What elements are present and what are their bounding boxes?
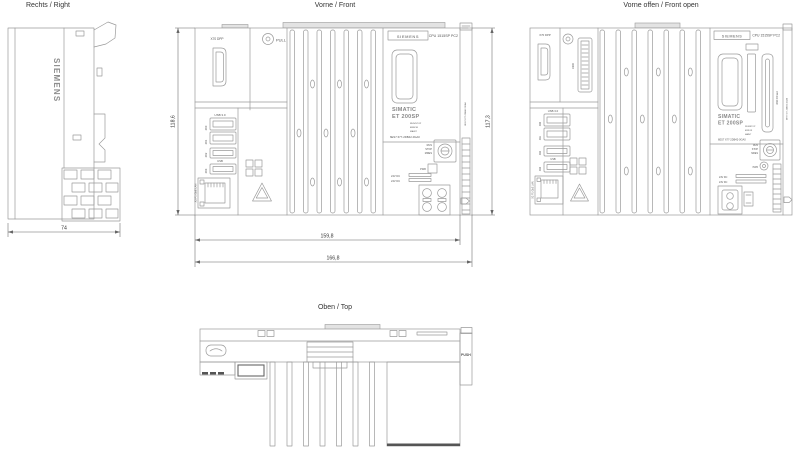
siemens-vertical-label: SIEMENS [52,58,61,102]
front-view: Vorne / Front X70 DPP PULL USB 3.0 [160,0,510,290]
usb-x62-label: X62 [204,152,208,157]
family-label-2: ET 200SP [392,114,420,120]
height-dimension-right: 117,3 [472,28,495,215]
right-view-title: Rechts / Right [26,2,70,9]
module-front-open-outline [530,23,792,215]
brand-logo: SIEMENS [397,34,419,39]
usb-x61-label-open: X61 [539,135,542,140]
height-dimension-left: 118,6 [171,28,196,215]
power-24v-label-1-open: 24V DC [719,176,728,179]
article-number: 6ES7 677-2DB42-0GA0 [390,135,420,139]
power-24v-label-2-open: 24V DC [719,181,728,184]
width-inner-value: 159,8 [321,234,334,240]
power-24v-label-1: 24V DC [391,174,400,178]
mode-run-label: RUN [427,144,433,147]
led-run-label: RUN/STOP [410,123,422,125]
dimension-drawing-page: { "device": { "brand": "SIEMENS", "model… [0,0,800,452]
led-error-label: ERROR [410,127,418,129]
usb-group-label-open: USB 3.0 [548,109,559,113]
right-view: Rechts / Right SIEMENS 74 [0,0,160,260]
usb-single-label: USB [217,159,223,163]
front-open-view-drawing: X70 DPP X300 USB 3.0 USB X60 X61 X62 X63 [520,14,800,230]
usb-x63-label: X63 [204,168,208,173]
front-view-title: Vorne / Front [160,2,510,9]
lan-label-open: X2 P1 GbE LAN [532,181,535,199]
led-error-label-open: ERROR [745,130,753,132]
push-label: PUSH [461,353,471,357]
edge-article-vertical: 6ES7 677-2DB42-0GA0 [464,102,467,126]
usb-x63-label-open: X63 [539,166,542,171]
depth-dimension: 74 [8,223,120,237]
led-run-label-open: RUN/STOP [745,126,756,128]
displayport-label: X70 DPP [210,37,223,41]
displayport-label-open: X70 DPP [539,33,551,37]
pull-label: PULL [276,38,287,43]
power-24v-label-2: 24V DC [391,179,400,183]
top-view-title: Oben / Top [190,304,480,311]
usb-x60-label: X60 [204,125,208,130]
height-right-value: 117,3 [486,115,492,128]
model-label-open: CPU 1515SP PC2 [752,34,780,38]
family-label-1: SIMATIC [392,107,416,113]
pwr-label-open: PWR [753,167,759,169]
front-open-view: Vorne offen / Front open X70 DPP X300 [520,0,800,230]
push-release: PUSH [460,328,472,386]
depth-dimension-value: 74 [61,226,67,232]
edge-article-vertical-open: 6ES7 677-2DB42-0GA0 [786,97,789,120]
mode-stop-label: STOP [425,148,432,151]
module-side-outline [8,28,94,219]
top-view: Oben / Top PUSH [190,302,490,452]
family-label-1-open: SIMATIC [718,114,740,120]
right-view-drawing: SIEMENS 74 [2,16,157,244]
din-rail-clip [94,22,116,162]
front-open-view-title: Vorne offen / Front open [520,2,800,9]
usb-x61-label: X61 [204,139,208,144]
top-lower-right-block [387,362,460,446]
usb-x62-label-open: X62 [539,150,542,155]
model-label: CPU 1515SP PC2 [429,34,458,38]
module-front-outline [195,23,472,216]
height-left-value: 118,6 [171,115,177,128]
cfast-label: X90 CFast [775,91,779,104]
mode-stop-label-open: STOP [752,149,759,151]
led-maint-label: MAINT [410,130,417,133]
mode-run-label-open: RUN [753,145,758,147]
mode-mres-label-open: MRES [751,153,758,155]
usb-single-label-open: USB [550,157,556,161]
top-lower-left [200,362,267,379]
terminal-blocks [62,168,120,221]
x300-label: X300 [571,62,575,69]
top-view-drawing: PUSH [190,320,490,452]
front-view-drawing: X70 DPP PULL USB 3.0 USB X60 X61 X62 X63… [160,14,510,280]
brand-logo-open: SIEMENS [722,35,743,39]
usb-group-label: USB 3.0 [214,113,226,117]
article-number-open: 6ES7 677-2DB42-0GA0 [718,138,746,142]
pwr-label: PWR [420,168,426,171]
lan-label: X2 P1 GbE LAN [194,184,198,203]
led-maint-label-open: MAINT [745,133,752,136]
width-dimension-outer: 166,8 [195,215,472,267]
usb-x60-label-open: X60 [539,121,542,126]
mode-mres-label: MRES [425,152,433,155]
heatsink-fins [270,362,375,446]
width-outer-value: 166,8 [327,256,340,262]
family-label-2-open: ET 200SP [718,121,744,127]
